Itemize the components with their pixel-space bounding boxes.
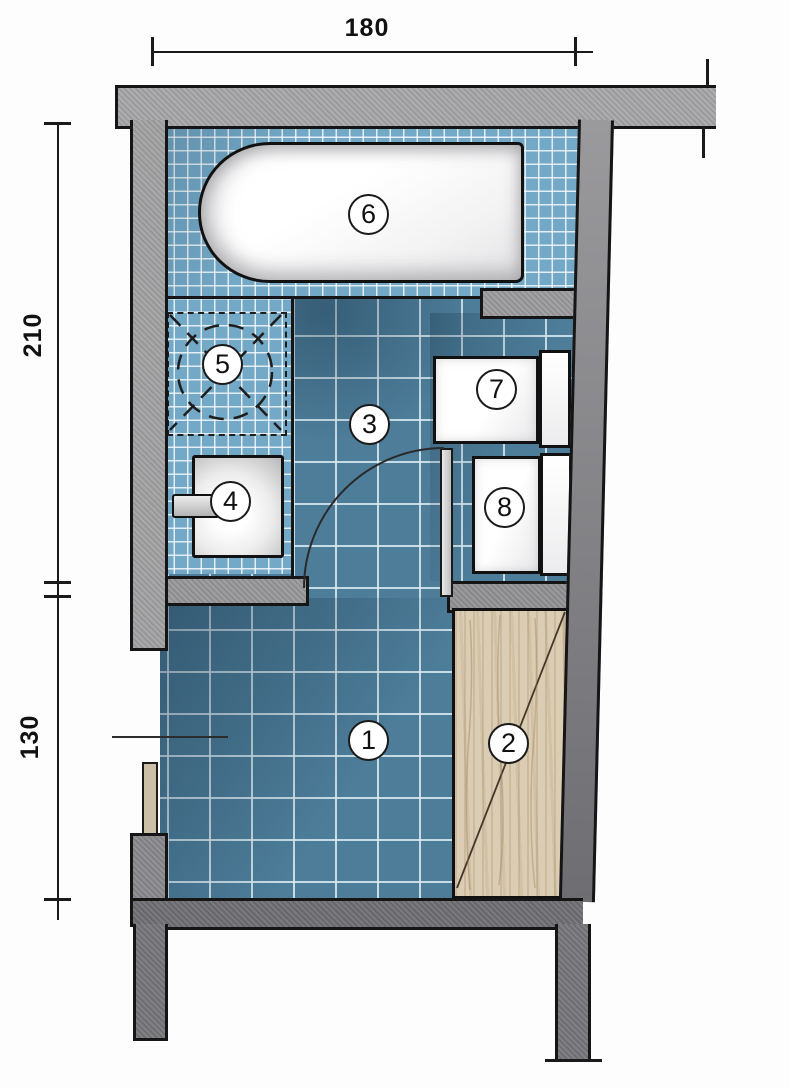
- niche-edge-line: [291, 298, 294, 576]
- dimension-tick: [44, 898, 71, 901]
- marker-number: 5: [215, 349, 230, 380]
- left-wall: [130, 120, 168, 651]
- marker-bathtub: 6: [348, 194, 389, 235]
- dimension-tick: [574, 37, 577, 66]
- marker-number: 3: [362, 409, 377, 440]
- marker-number: 2: [501, 728, 516, 759]
- wall-end-tick: [545, 1059, 602, 1062]
- interior-door-leaf: [440, 448, 453, 597]
- dimension-label-upper-height: 210: [19, 305, 47, 365]
- bathtub-zone-edge-line: [160, 296, 482, 299]
- bottom-right-wall-stub: [555, 924, 591, 1060]
- dimension-label-lower-height: 130: [16, 707, 44, 767]
- marker-wood-panel: 2: [488, 723, 529, 764]
- marker-number: 6: [361, 199, 376, 230]
- bottom-wall: [133, 898, 583, 930]
- marker-upper-floor-area: 3: [349, 404, 390, 445]
- dimension-line-left: [57, 123, 59, 920]
- top-wall: [115, 85, 716, 129]
- marker-bidet: 8: [484, 487, 525, 528]
- dimension-tick: [44, 581, 71, 584]
- wall-end-tick: [702, 126, 705, 158]
- marker-number: 8: [497, 492, 512, 523]
- marker-washing-machine: 5: [202, 344, 243, 385]
- entry-threshold-line: [112, 736, 228, 738]
- bottom-left-wall-stub: [133, 924, 168, 1041]
- dimension-line-top: [152, 51, 593, 53]
- dimension-tick: [151, 37, 154, 66]
- mid-wall-stub: [480, 288, 583, 319]
- dimension-tick: [44, 595, 71, 598]
- marker-toilet: 7: [476, 369, 517, 410]
- marker-number: 7: [489, 374, 504, 405]
- marker-main-floor-area: 1: [348, 720, 389, 761]
- marker-number: 4: [223, 486, 238, 517]
- toilet-tank: [539, 350, 571, 448]
- marker-number: 1: [361, 725, 376, 756]
- dimension-label-width: 180: [331, 14, 403, 43]
- marker-washbasin: 4: [210, 481, 251, 522]
- dimension-tick: [44, 122, 71, 125]
- wall-end-tick: [706, 59, 709, 86]
- niche-bottom-wall: [160, 576, 309, 606]
- floor-plan: 1 2 3 4 5 6 7 8 180 210 130: [0, 0, 790, 1089]
